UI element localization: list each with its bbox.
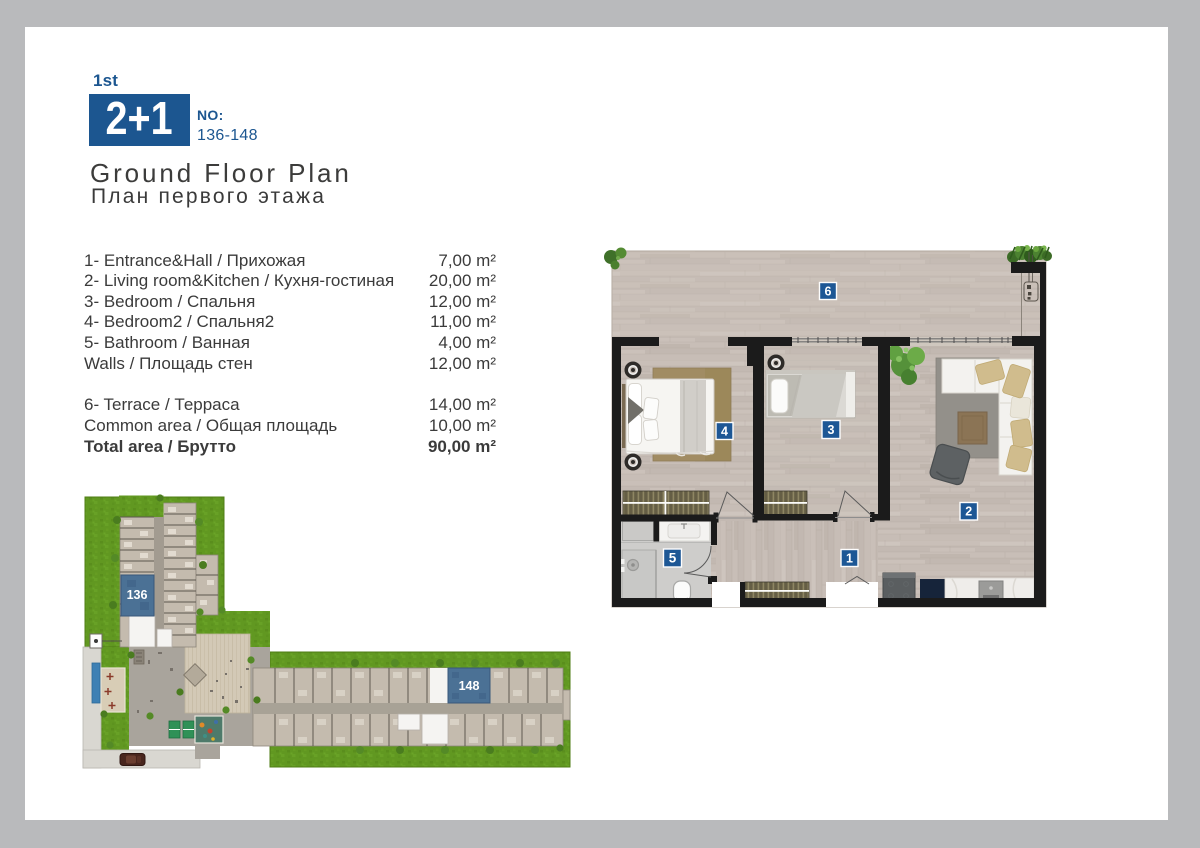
svg-text:2: 2	[965, 505, 972, 519]
svg-text:6: 6	[825, 285, 832, 299]
svg-text:3: 3	[828, 423, 835, 437]
svg-text:5: 5	[669, 551, 677, 566]
svg-text:4: 4	[721, 425, 728, 439]
svg-text:136: 136	[127, 588, 148, 602]
svg-text:148: 148	[459, 679, 480, 693]
svg-text:1: 1	[846, 552, 853, 566]
